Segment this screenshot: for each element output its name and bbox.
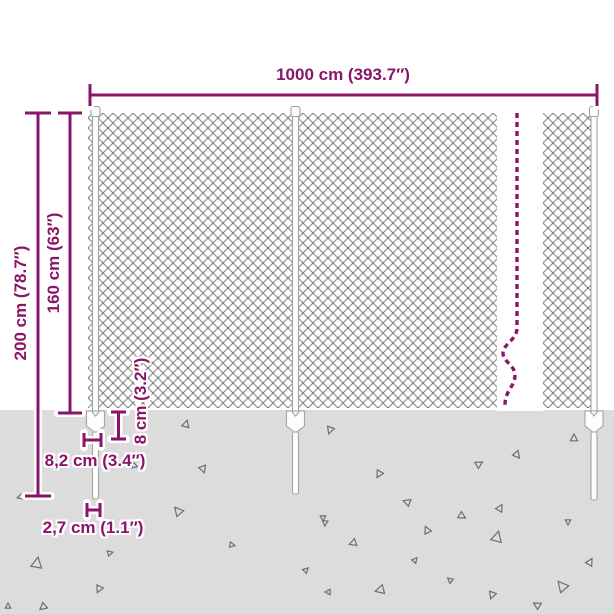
fence-break-gap	[497, 110, 543, 411]
fence-height-label: 160 cm (63″)	[44, 213, 64, 314]
fence-dimension-diagram: 1000 cm (393.7″) 200 cm (78.7″) 160 cm (…	[0, 0, 614, 614]
anchor-height-label: 8 cm (3.2″)	[131, 358, 151, 445]
total-height-label: 200 cm (78.7″)	[11, 246, 31, 361]
spike-width-label: 2,7 cm (1.1″)	[43, 518, 144, 538]
anchor-width-label: 8,2 cm (3.4″)	[45, 451, 146, 471]
total-width-label: 1000 cm (393.7″)	[276, 65, 410, 85]
